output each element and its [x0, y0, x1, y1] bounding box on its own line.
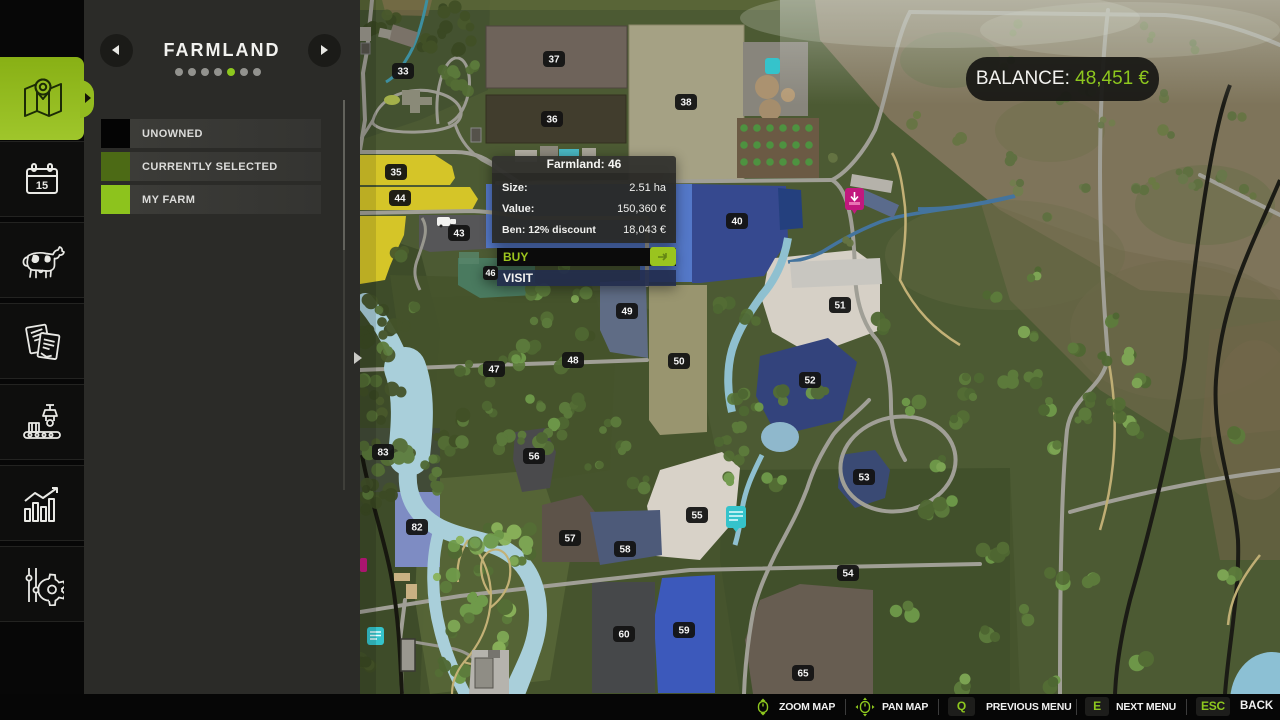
svg-text:33: 33: [397, 67, 409, 78]
svg-text:53: 53: [858, 473, 870, 484]
svg-text:43: 43: [453, 229, 465, 240]
svg-text:38: 38: [680, 98, 692, 109]
svg-text:58: 58: [619, 545, 631, 556]
svg-text:65: 65: [797, 669, 809, 680]
svg-text:54: 54: [842, 569, 854, 580]
svg-text:59: 59: [678, 626, 690, 637]
svg-text:50: 50: [673, 357, 685, 368]
svg-text:37: 37: [548, 55, 560, 66]
svg-text:52: 52: [804, 376, 816, 387]
svg-text:48: 48: [567, 356, 579, 367]
svg-text:40: 40: [731, 217, 743, 228]
svg-text:60: 60: [618, 630, 630, 641]
svg-text:35: 35: [390, 168, 402, 179]
svg-text:83: 83: [377, 448, 389, 459]
svg-text:49: 49: [621, 307, 633, 318]
svg-text:44: 44: [394, 194, 406, 205]
svg-text:82: 82: [411, 523, 423, 534]
svg-text:47: 47: [488, 365, 500, 376]
svg-text:15: 15: [36, 180, 48, 192]
svg-text:36: 36: [546, 115, 558, 126]
svg-text:55: 55: [691, 511, 703, 522]
svg-text:51: 51: [834, 301, 846, 312]
svg-text:57: 57: [564, 534, 576, 545]
svg-text:56: 56: [528, 452, 540, 463]
